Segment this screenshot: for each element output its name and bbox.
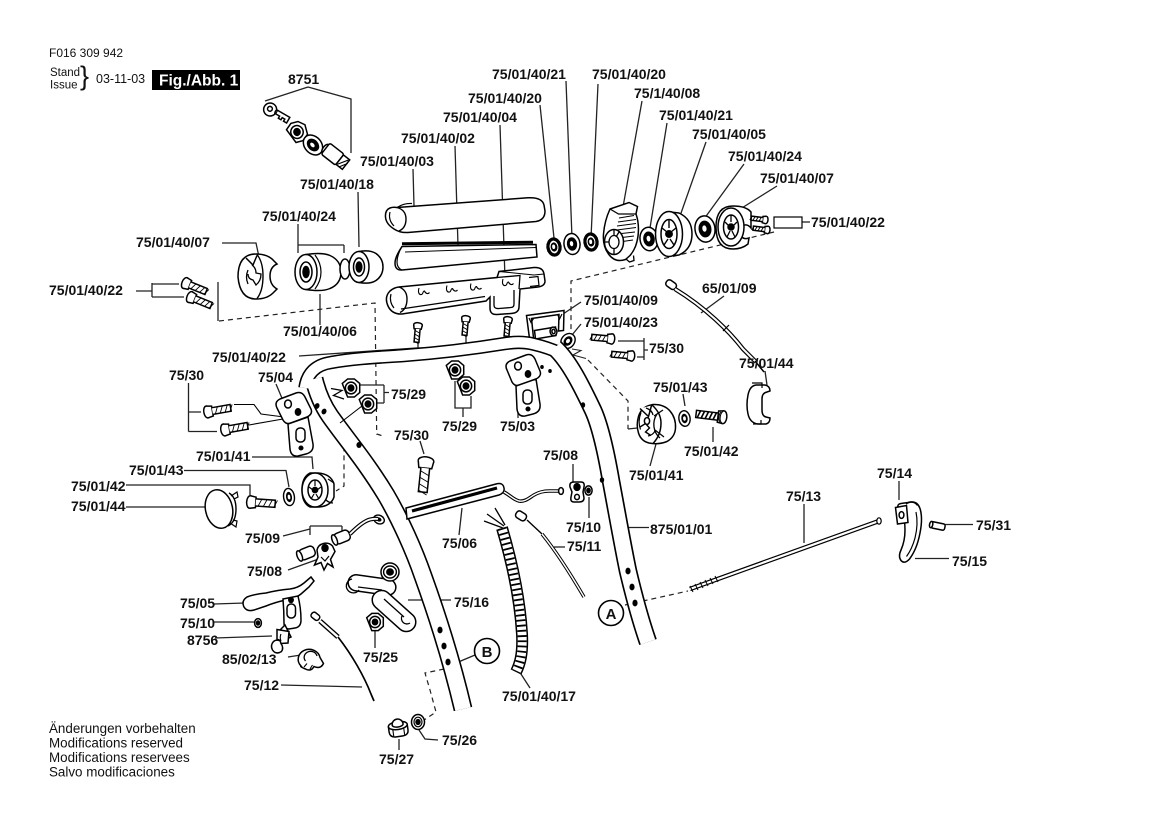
svg-text:A: A [606, 606, 617, 623]
svg-text:75/1/40/08: 75/1/40/08 [634, 85, 700, 101]
svg-text:F016 309 942: F016 309 942 [49, 46, 123, 60]
svg-text:75/01/40/21: 75/01/40/21 [659, 107, 733, 123]
svg-text:Issue: Issue [50, 80, 78, 92]
svg-text:75/01/40/02: 75/01/40/02 [401, 130, 475, 146]
svg-text:75/01/42: 75/01/42 [684, 443, 739, 459]
svg-text:75/12: 75/12 [244, 677, 279, 693]
svg-text:75/31: 75/31 [976, 517, 1011, 533]
svg-text:75/30: 75/30 [169, 367, 204, 383]
svg-text:75/30: 75/30 [649, 340, 684, 356]
svg-text:75/11: 75/11 [567, 538, 601, 554]
svg-text:75/06: 75/06 [442, 535, 477, 551]
svg-text:}: } [80, 61, 89, 91]
svg-text:75/25: 75/25 [363, 649, 398, 665]
svg-text:75/27: 75/27 [379, 751, 414, 767]
svg-text:75/03: 75/03 [500, 418, 535, 434]
svg-text:75/04: 75/04 [258, 369, 293, 385]
svg-text:75/01/44: 75/01/44 [739, 355, 794, 371]
svg-text:8756: 8756 [187, 632, 218, 648]
svg-text:75/10: 75/10 [180, 615, 215, 631]
svg-text:Stand: Stand [50, 67, 80, 79]
svg-text:875/01/01: 875/01/01 [650, 521, 712, 537]
svg-text:75/08: 75/08 [247, 563, 282, 579]
svg-text:75/29: 75/29 [442, 418, 477, 434]
svg-text:8751: 8751 [288, 71, 319, 87]
svg-text:75/16: 75/16 [454, 594, 489, 610]
svg-text:75/01/40/22: 75/01/40/22 [811, 214, 885, 230]
svg-text:75/01/40/22: 75/01/40/22 [212, 349, 286, 365]
svg-text:75/01/40/20: 75/01/40/20 [468, 90, 542, 106]
svg-text:75/15: 75/15 [952, 553, 987, 569]
svg-text:75/01/40/04: 75/01/40/04 [443, 109, 517, 125]
svg-text:75/01/41: 75/01/41 [196, 448, 251, 464]
svg-text:75/09: 75/09 [245, 530, 280, 546]
svg-text:75/01/40/03: 75/01/40/03 [360, 153, 434, 169]
svg-text:75/01/40/07: 75/01/40/07 [760, 170, 834, 186]
svg-text:75/05: 75/05 [180, 595, 215, 611]
svg-text:75/01/42: 75/01/42 [71, 478, 126, 494]
svg-text:75/01/40/07: 75/01/40/07 [136, 234, 210, 250]
svg-text:75/30: 75/30 [394, 427, 429, 443]
svg-text:Salvo modificaciones: Salvo modificaciones [49, 765, 175, 780]
svg-text:75/01/40/24: 75/01/40/24 [728, 148, 802, 164]
svg-text:75/29: 75/29 [391, 386, 426, 402]
svg-text:75/01/40/24: 75/01/40/24 [262, 208, 336, 224]
svg-text:75/26: 75/26 [442, 732, 477, 748]
svg-text:75/01/40/09: 75/01/40/09 [584, 292, 658, 308]
svg-text:Modifications reservees: Modifications reservees [49, 750, 190, 765]
svg-text:B: B [482, 644, 493, 661]
svg-text:75/10: 75/10 [566, 519, 601, 535]
svg-text:75/01/40/17: 75/01/40/17 [502, 688, 576, 704]
svg-text:85/02/13: 85/02/13 [222, 651, 277, 667]
svg-text:75/01/43: 75/01/43 [129, 462, 184, 478]
svg-text:75/14: 75/14 [877, 465, 912, 481]
svg-text:Änderungen vorbehalten: Änderungen vorbehalten [49, 721, 196, 736]
svg-text:75/01/40/23: 75/01/40/23 [584, 314, 658, 330]
svg-text:75/01/40/18: 75/01/40/18 [300, 176, 374, 192]
svg-text:65/01/09: 65/01/09 [702, 280, 757, 296]
svg-text:75/01/40/21: 75/01/40/21 [492, 66, 566, 82]
svg-text:75/01/44: 75/01/44 [71, 498, 126, 514]
svg-text:75/01/40/06: 75/01/40/06 [283, 323, 357, 339]
svg-text:Fig./Abb. 1: Fig./Abb. 1 [159, 73, 239, 90]
svg-text:75/13: 75/13 [786, 488, 821, 504]
svg-text:75/01/40/22: 75/01/40/22 [49, 282, 123, 298]
svg-text:75/01/41: 75/01/41 [629, 467, 684, 483]
svg-text:75/01/40/20: 75/01/40/20 [592, 66, 666, 82]
svg-text:75/01/40/05: 75/01/40/05 [692, 126, 766, 142]
svg-text:75/08: 75/08 [543, 447, 578, 463]
svg-text:Modifications reserved: Modifications reserved [49, 736, 183, 751]
svg-text:03-11-03: 03-11-03 [96, 72, 145, 86]
svg-text:75/01/43: 75/01/43 [653, 379, 708, 395]
